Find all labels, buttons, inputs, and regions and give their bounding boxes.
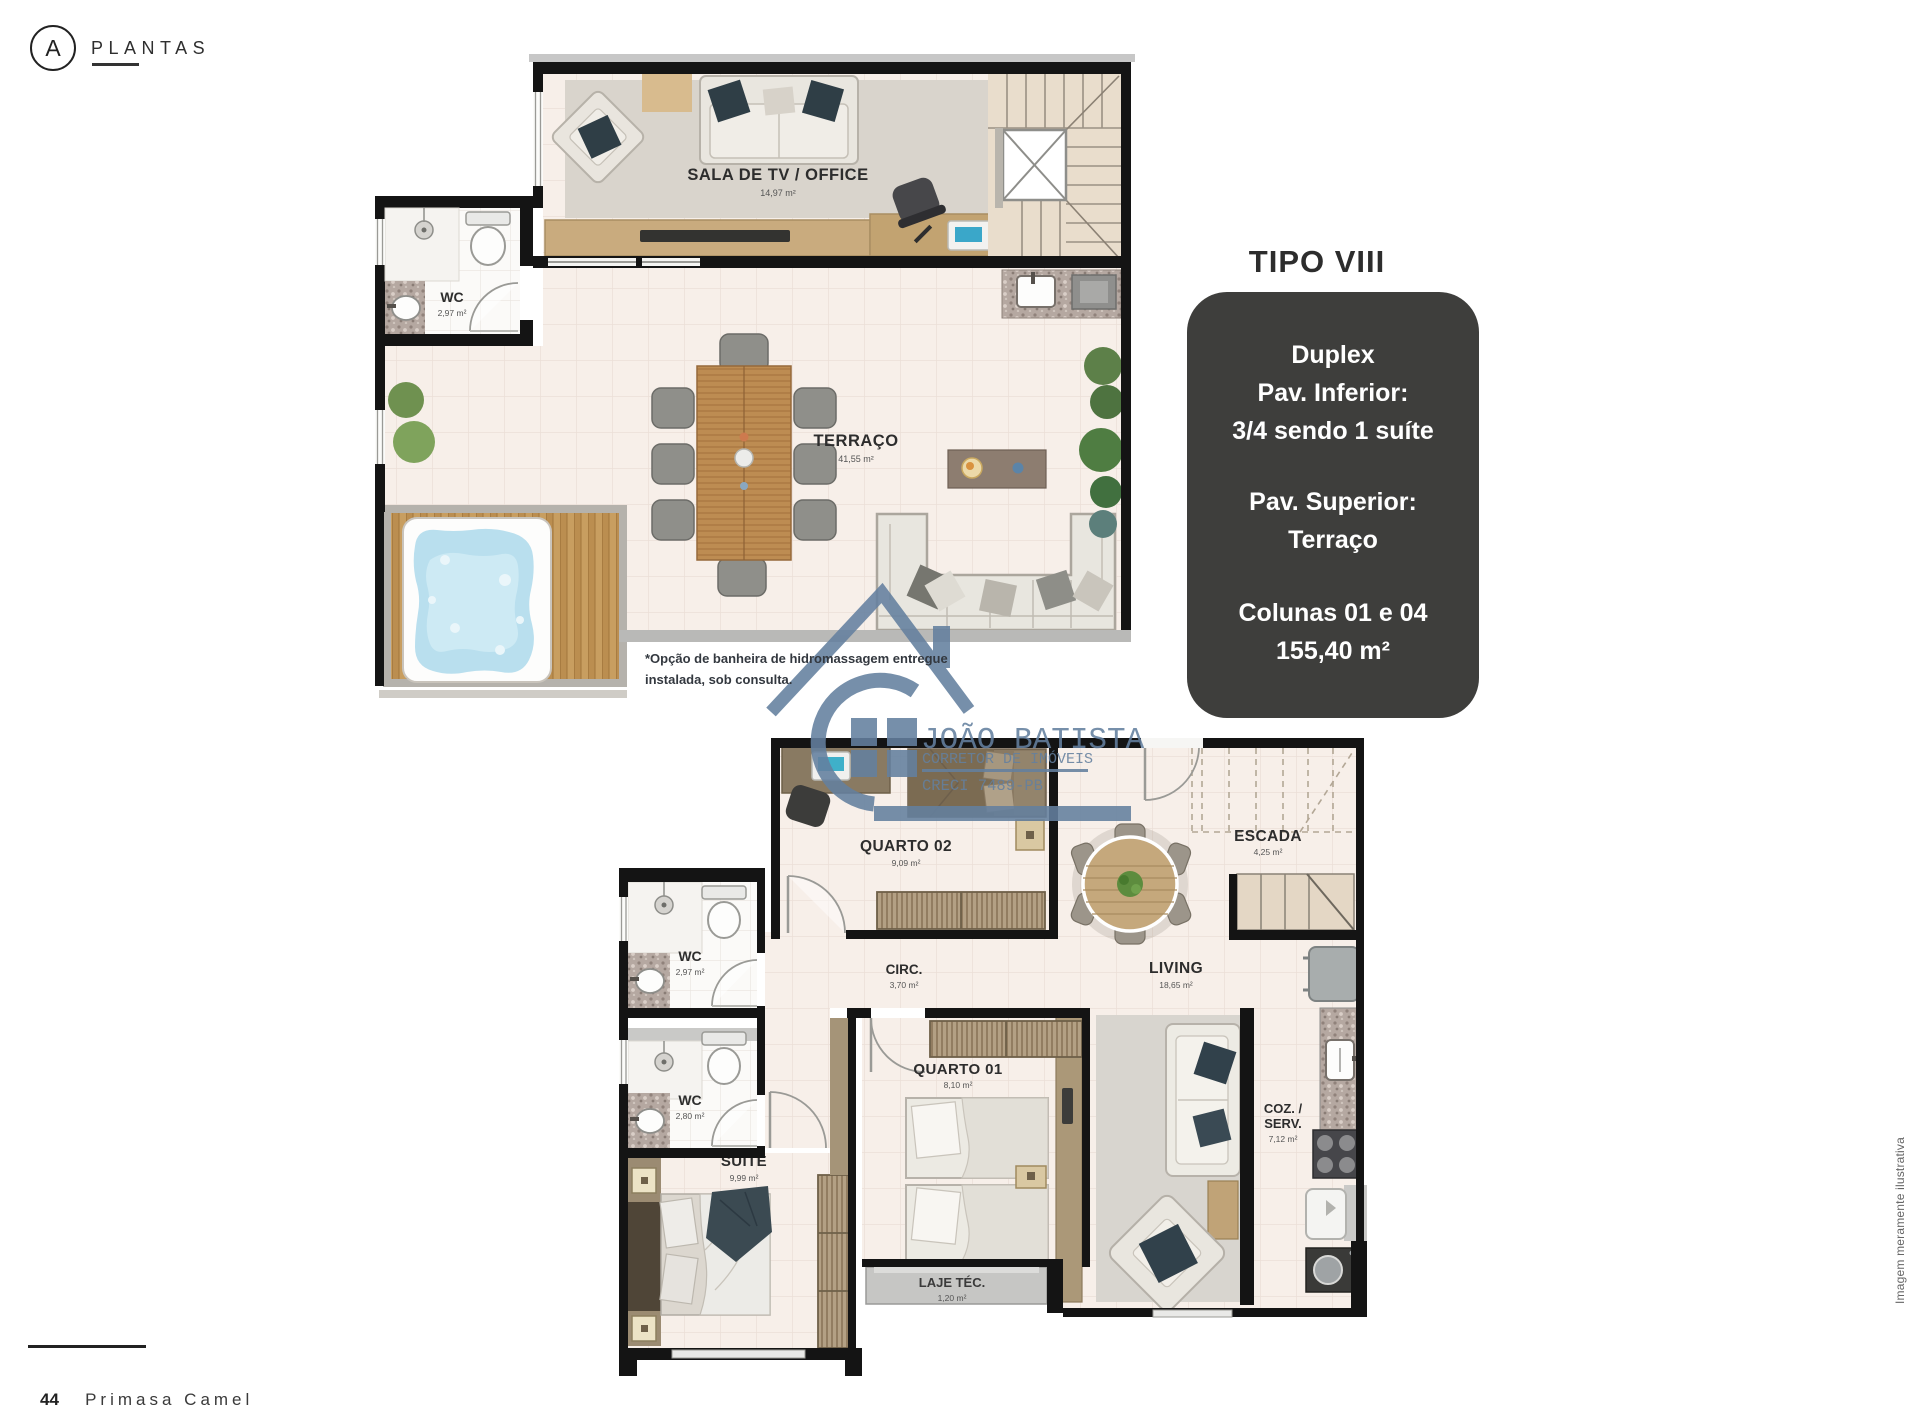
svg-text:1,20 m²: 1,20 m² <box>938 1293 967 1303</box>
svg-text:instalada, sob consulta.: instalada, sob consulta. <box>645 672 792 687</box>
svg-text:WC: WC <box>678 948 701 964</box>
svg-text:2,97 m²: 2,97 m² <box>438 308 467 318</box>
svg-text:LAJE TÉC.: LAJE TÉC. <box>919 1275 985 1290</box>
svg-text:9,99 m²: 9,99 m² <box>730 1173 759 1183</box>
svg-text:8,10 m²: 8,10 m² <box>944 1080 973 1090</box>
svg-text:LIVING: LIVING <box>1149 960 1203 977</box>
svg-text:2,97 m²: 2,97 m² <box>676 967 705 977</box>
svg-text:CORRETOR DE IMÓVEIS: CORRETOR DE IMÓVEIS <box>922 750 1093 768</box>
svg-text:CIRC.: CIRC. <box>886 962 923 977</box>
svg-text:WC: WC <box>440 289 463 305</box>
svg-text:3,70 m²: 3,70 m² <box>890 980 919 990</box>
svg-text:14,97 m²: 14,97 m² <box>760 188 796 198</box>
svg-text:9,09 m²: 9,09 m² <box>892 858 921 868</box>
svg-text:ESCADA: ESCADA <box>1234 828 1302 845</box>
svg-text:*Opção de banheira de hidromas: *Opção de banheira de hidromassagem entr… <box>645 651 948 666</box>
svg-text:41,55 m²: 41,55 m² <box>838 454 874 464</box>
svg-text:4,25 m²: 4,25 m² <box>1254 847 1283 857</box>
svg-text:CRECI 7489-PB: CRECI 7489-PB <box>922 777 1043 795</box>
svg-text:SALA DE TV / OFFICE: SALA DE TV / OFFICE <box>687 166 868 184</box>
svg-text:7,12 m²: 7,12 m² <box>1269 1134 1298 1144</box>
svg-text:COZ. /: COZ. / <box>1264 1101 1303 1116</box>
svg-text:TERRAÇO: TERRAÇO <box>813 432 898 450</box>
svg-text:SERV.: SERV. <box>1264 1116 1302 1131</box>
svg-text:WC: WC <box>678 1092 701 1108</box>
svg-text:18,65 m²: 18,65 m² <box>1159 980 1193 990</box>
svg-text:QUARTO 01: QUARTO 01 <box>913 1061 1002 1078</box>
svg-text:2,80 m²: 2,80 m² <box>676 1111 705 1121</box>
svg-text:QUARTO 02: QUARTO 02 <box>860 838 952 855</box>
